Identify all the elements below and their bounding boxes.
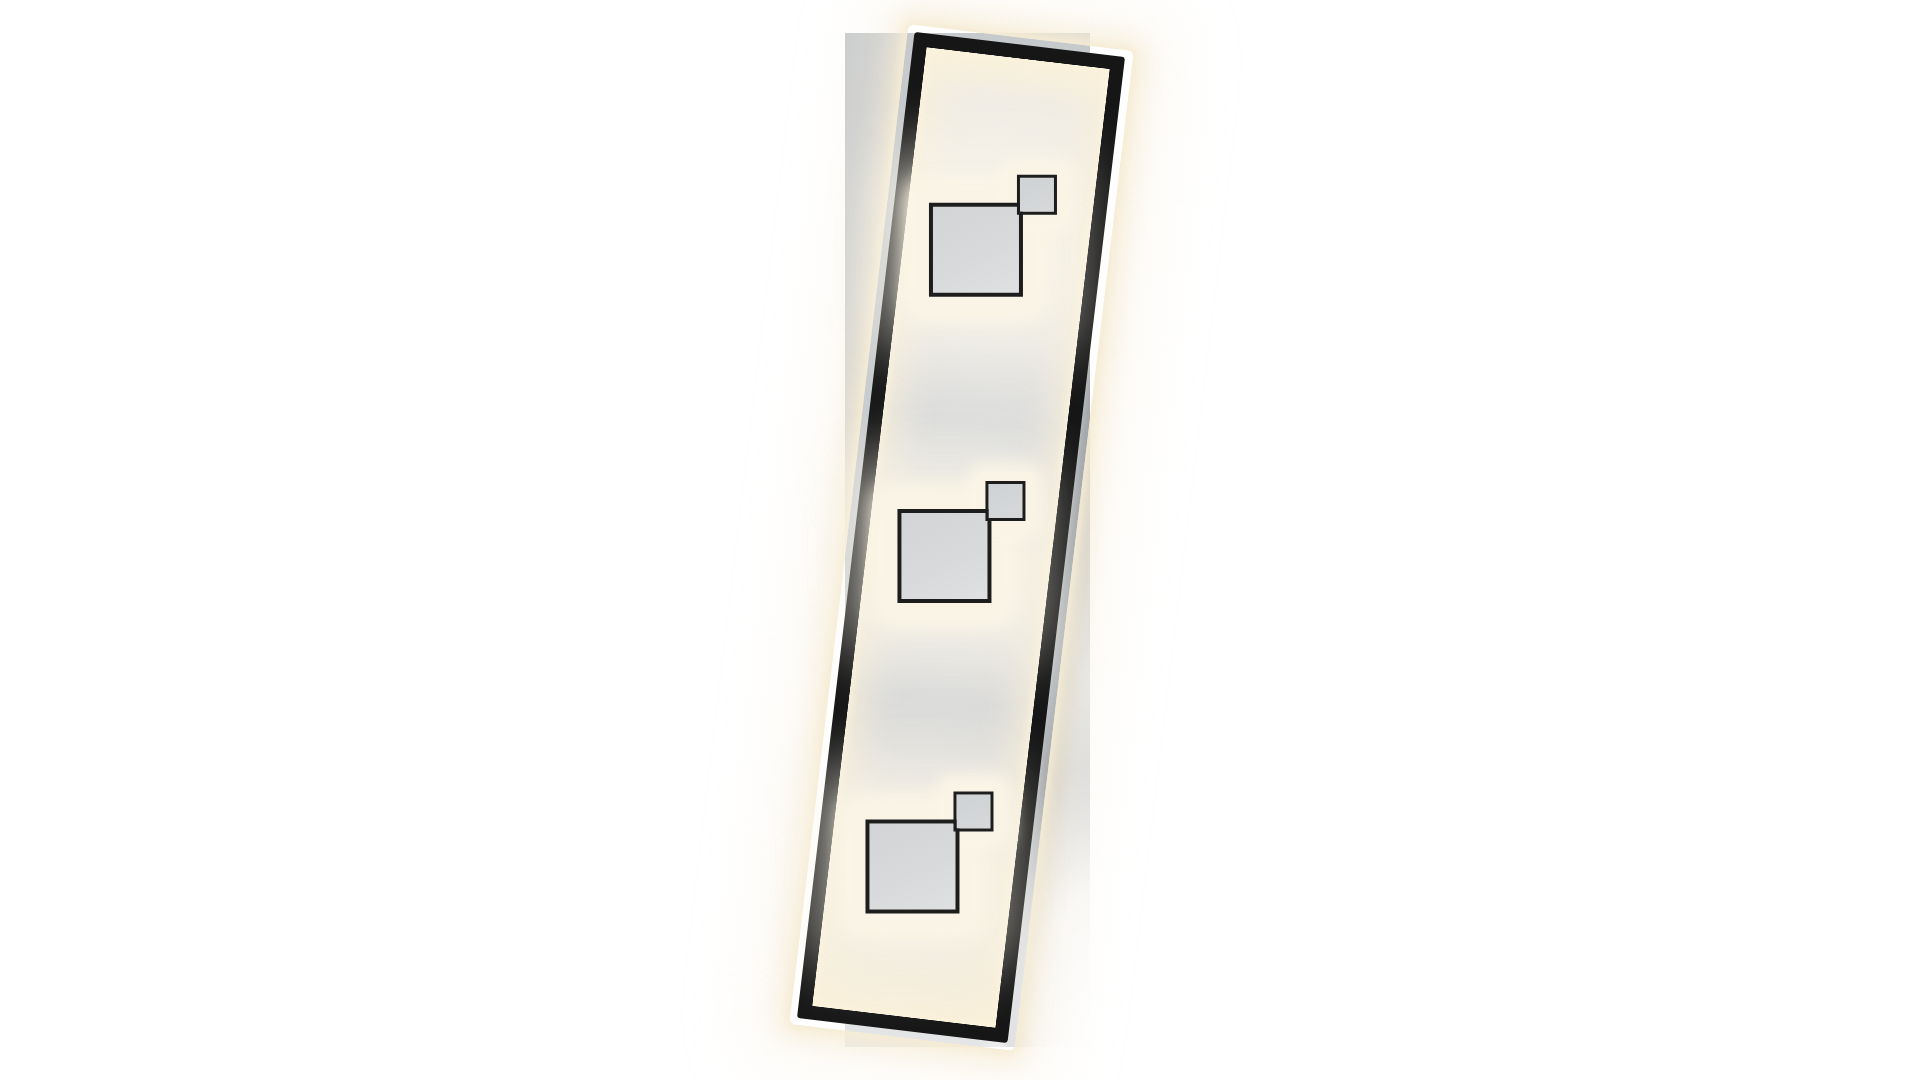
large-square bbox=[897, 509, 991, 603]
square-module-middle bbox=[897, 481, 1025, 603]
small-square bbox=[1017, 175, 1057, 215]
large-square bbox=[929, 203, 1023, 297]
small-square bbox=[953, 791, 993, 831]
square-module-top bbox=[929, 175, 1057, 297]
product-photo-canvas bbox=[0, 0, 1920, 1080]
small-square bbox=[985, 481, 1025, 521]
square-module-bottom bbox=[865, 791, 993, 913]
large-square bbox=[865, 819, 959, 913]
